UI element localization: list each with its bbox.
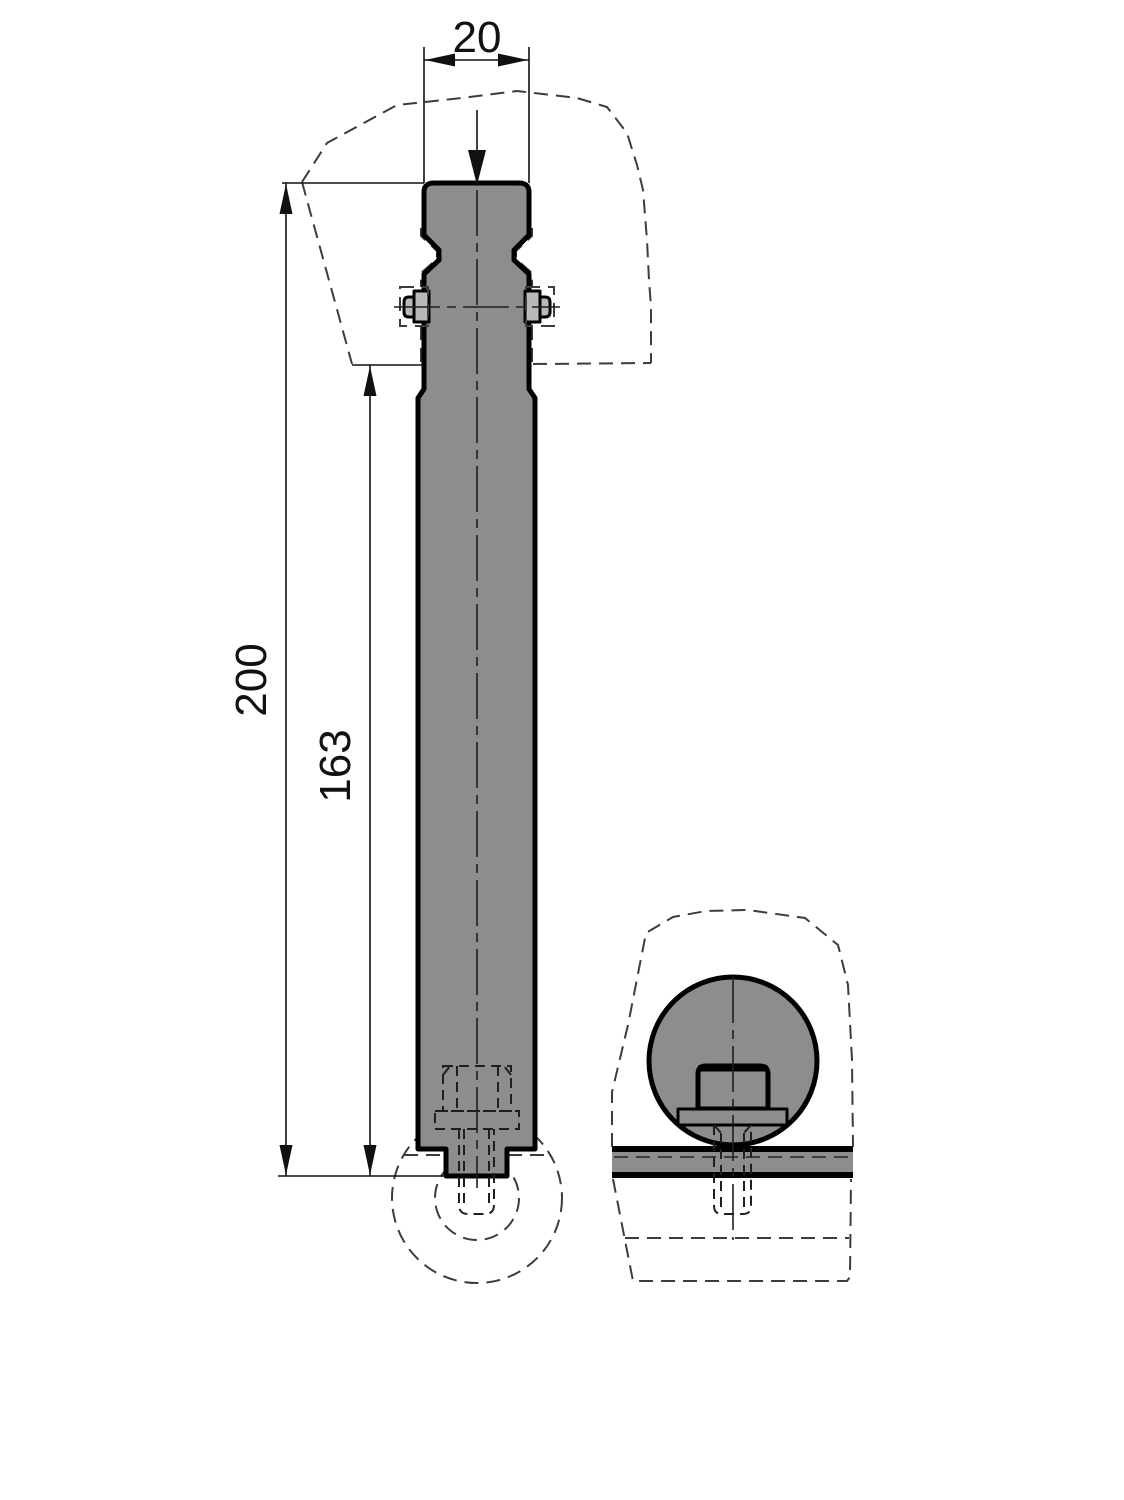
phantom-cover-lower xyxy=(613,1179,851,1281)
arrowhead-exposed-bottom xyxy=(364,1145,377,1175)
arrowhead-exposed-top xyxy=(364,366,377,396)
dimension-overall-value: 200 xyxy=(227,643,276,716)
arrowhead-overall-top xyxy=(280,184,293,214)
arrowhead-width-left xyxy=(425,54,455,67)
engineering-drawing: 20 200 163 xyxy=(0,0,1124,1500)
dimension-width: 20 xyxy=(424,13,529,185)
phantom-bracket-bottom-right xyxy=(533,363,651,364)
dimension-exposed-length: 163 xyxy=(311,365,424,1176)
phantom-bracket-left-slant xyxy=(302,182,352,364)
drawing-canvas: 20 200 163 xyxy=(0,0,1124,1500)
dimension-exposed-value: 163 xyxy=(311,729,360,802)
arrowhead-overall-bottom xyxy=(280,1145,293,1175)
front-view xyxy=(302,91,651,1283)
dimension-width-value: 20 xyxy=(453,13,502,62)
side-view xyxy=(612,910,853,1281)
dimension-overall-length: 200 xyxy=(227,183,446,1176)
arrowhead-width-right xyxy=(498,54,528,67)
load-arrowhead xyxy=(468,150,486,185)
